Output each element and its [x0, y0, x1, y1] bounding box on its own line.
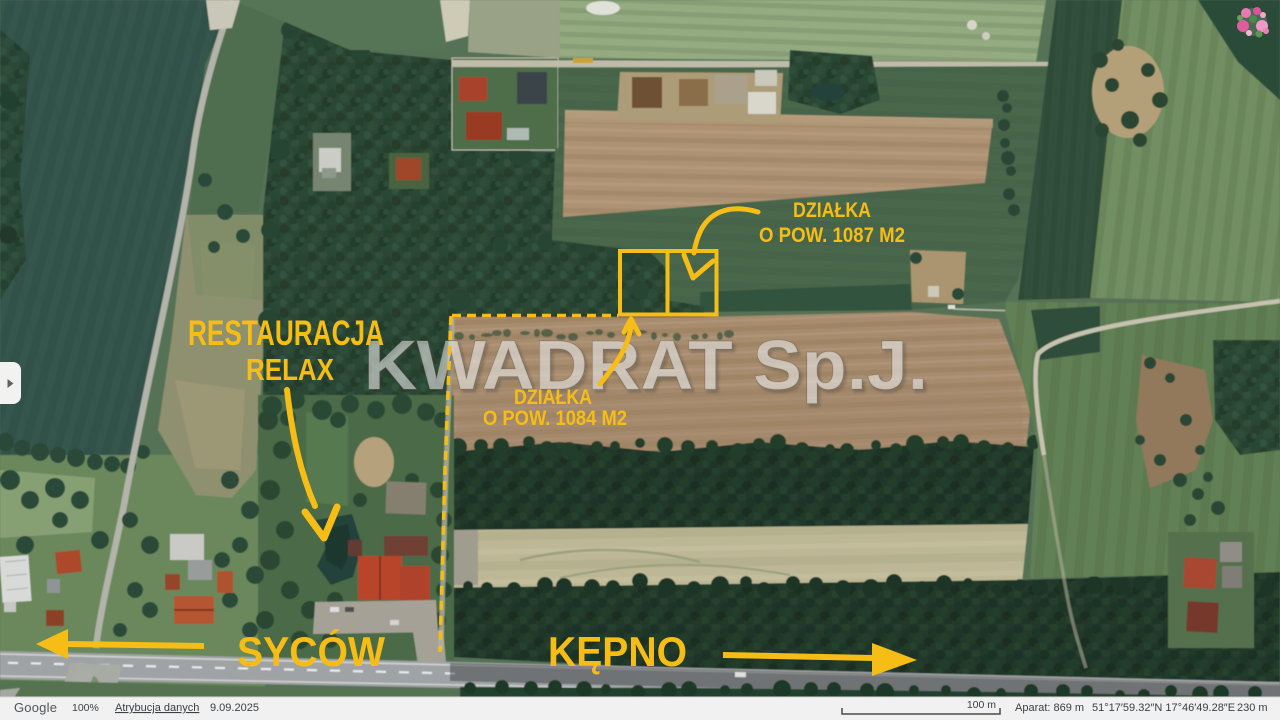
svg-text:O POW. 1087 M2: O POW. 1087 M2: [759, 223, 905, 247]
svg-text:DZIAŁKA: DZIAŁKA: [514, 386, 592, 409]
svg-text:51°17′59.32″N 17°46′49.28″E: 51°17′59.32″N 17°46′49.28″E: [1092, 702, 1235, 714]
svg-text:9.09.2025: 9.09.2025: [210, 702, 259, 714]
svg-text:RELAX: RELAX: [246, 352, 334, 387]
svg-text:100 m: 100 m: [967, 699, 996, 711]
svg-text:Google: Google: [14, 700, 57, 715]
svg-text:100%: 100%: [72, 702, 99, 714]
svg-text:Aparat: 869 m: Aparat: 869 m: [1015, 702, 1084, 714]
svg-text:KĘPNO: KĘPNO: [548, 628, 687, 675]
svg-text:O POW. 1084 M2: O POW. 1084 M2: [483, 407, 627, 430]
svg-text:DZIAŁKA: DZIAŁKA: [793, 198, 871, 222]
svg-text:230 m: 230 m: [1237, 702, 1268, 714]
svg-text:Atrybucja danych: Atrybucja danych: [115, 702, 199, 714]
svg-text:RESTAURACJA: RESTAURACJA: [188, 314, 384, 353]
svg-text:SYCÓW: SYCÓW: [237, 627, 385, 675]
